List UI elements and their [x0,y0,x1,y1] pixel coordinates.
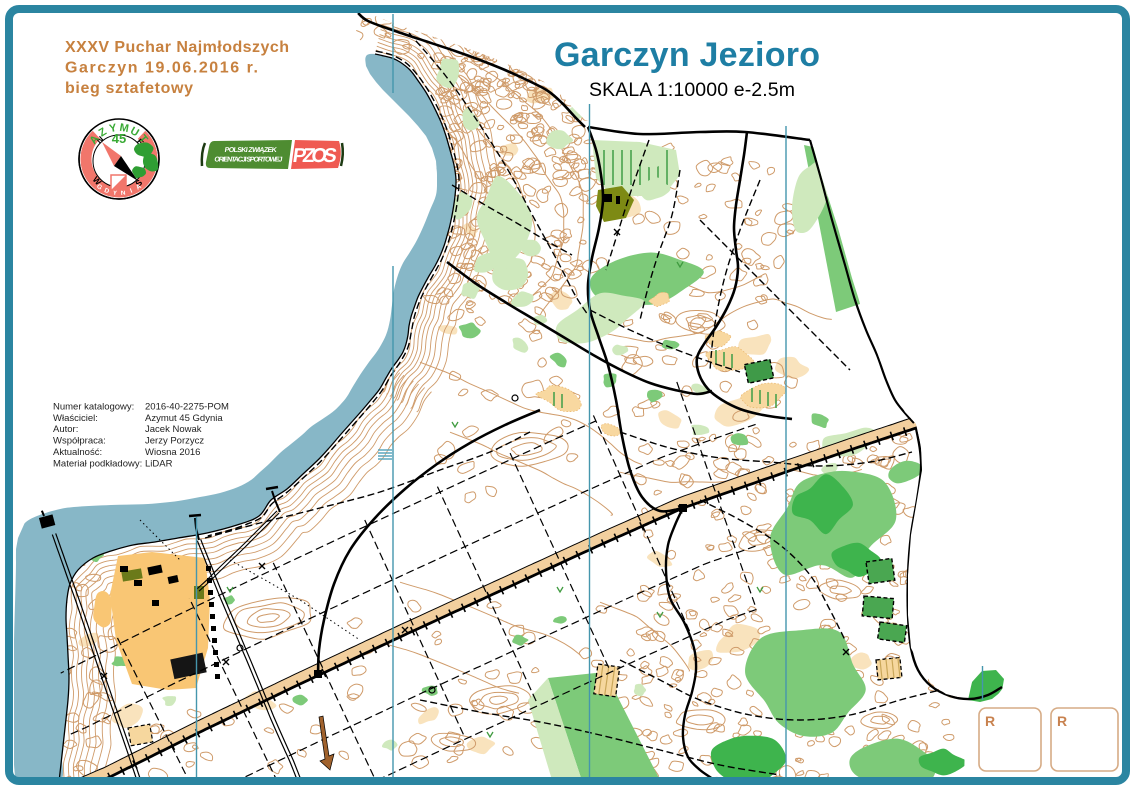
svg-text:Azymut 45 Gdynia: Azymut 45 Gdynia [145,413,223,424]
svg-text:Współpraca:: Współpraca: [53,436,106,447]
svg-text:R: R [1057,713,1067,729]
svg-text:Autor:: Autor: [53,424,78,435]
svg-text:Materiał podkładowy:: Materiał podkładowy: [53,458,142,469]
svg-text:M: M [119,122,130,135]
svg-text:XXXV Puchar Najmłodszych: XXXV Puchar Najmłodszych [65,39,289,56]
svg-text:R: R [985,713,995,729]
svg-text:2016-40-2275-POM: 2016-40-2275-POM [145,402,229,413]
svg-text:Numer katalogowy:: Numer katalogowy: [53,402,134,413]
svg-text:PZOS: PZOS [291,145,338,167]
svg-text:SKALA 1:10000 e-2.5m: SKALA 1:10000 e-2.5m [589,79,795,101]
svg-text:Garczyn Jezioro: Garczyn Jezioro [554,36,820,74]
svg-text:LiDAR: LiDAR [145,458,173,469]
svg-text:Jerzy Porzycz: Jerzy Porzycz [145,436,204,447]
svg-text:bieg sztafetowy: bieg sztafetowy [65,80,193,97]
svg-text:Aktualność:: Aktualność: [53,447,102,458]
svg-text:POLSKI ZWIĄZEK: POLSKI ZWIĄZEK [224,147,277,154]
svg-text:ORIENTACJI SPORTOWEJ: ORIENTACJI SPORTOWEJ [214,157,283,164]
svg-text:Właściciel:: Właściciel: [53,413,98,424]
svg-text:Wiosna 2016: Wiosna 2016 [145,447,200,458]
svg-text:Jacek Nowak: Jacek Nowak [145,424,202,435]
